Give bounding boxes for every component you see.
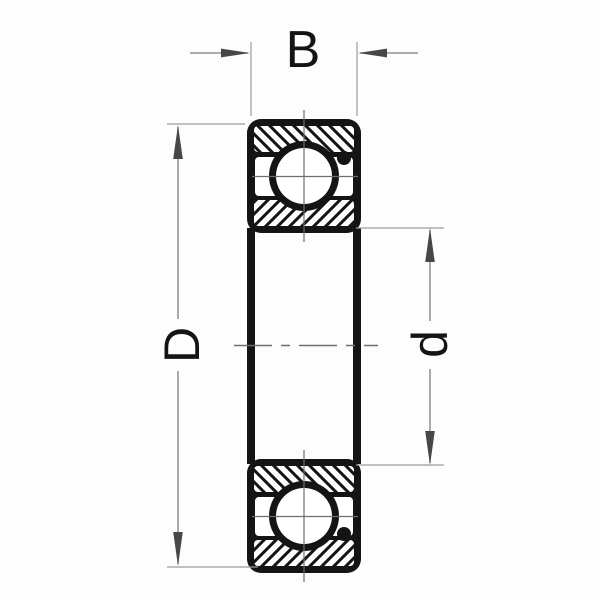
bearing-drawing-canvas: B D d — [0, 0, 600, 600]
d-bore-arrowhead-top — [425, 228, 435, 262]
bore-diameter-label: d — [402, 330, 458, 358]
dimension-bore-diameter-d: d — [356, 228, 458, 465]
outer-diameter-label: D — [154, 327, 210, 363]
bearing-bottom-section — [247, 450, 361, 582]
top-rivet-dot — [337, 151, 351, 165]
b-arrowhead-left — [221, 49, 250, 58]
d-outer-arrowhead-top — [173, 125, 183, 159]
b-arrowhead-right — [358, 49, 387, 58]
d-bore-arrowhead-bottom — [425, 431, 435, 465]
dimension-width-B: B — [190, 21, 418, 116]
width-label: B — [286, 21, 321, 79]
bearing-cross-section-diagram: B D d — [0, 0, 600, 600]
bearing-top-section — [247, 110, 361, 242]
bottom-rivet-dot — [337, 527, 351, 541]
d-outer-arrowhead-bottom — [173, 532, 183, 566]
